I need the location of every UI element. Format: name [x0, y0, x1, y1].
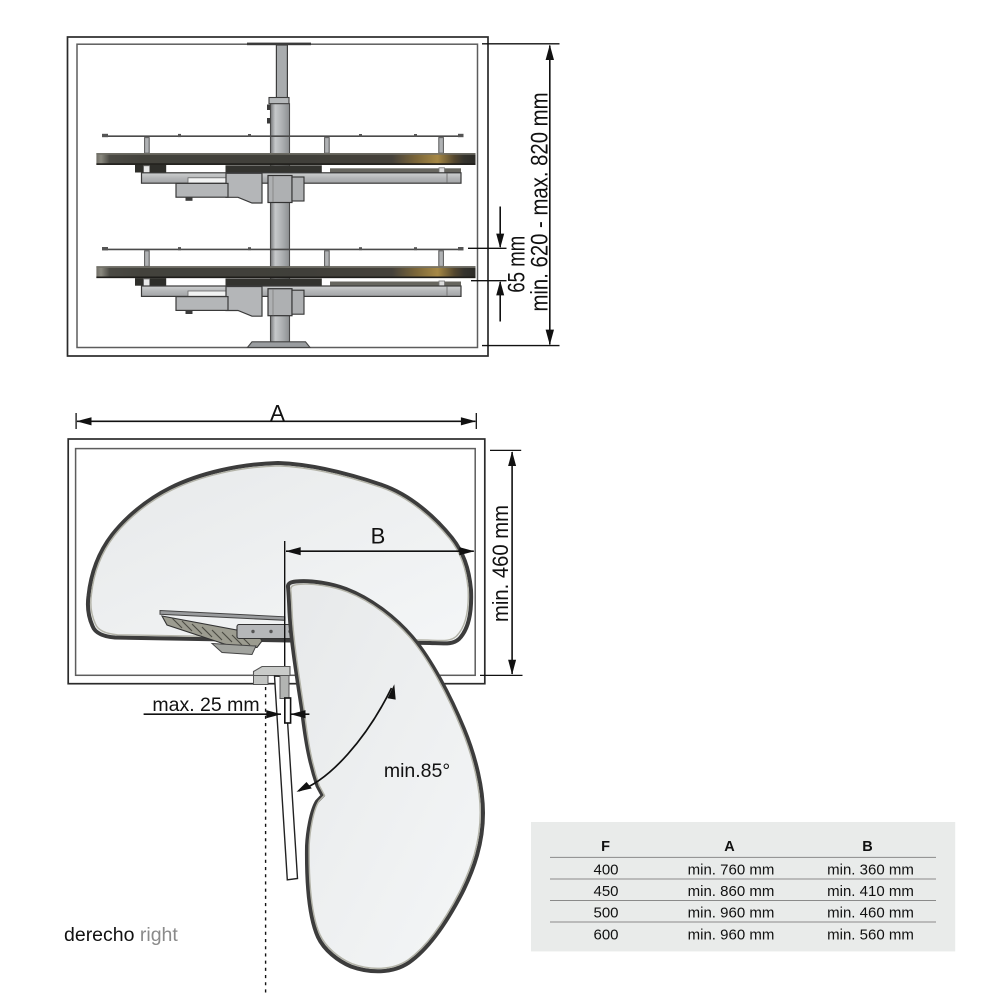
svg-text:min. 760 mm: min. 760 mm	[688, 862, 775, 879]
svg-text:min. 410 mm: min. 410 mm	[827, 883, 914, 900]
svg-text:A: A	[724, 839, 735, 855]
svg-text:F: F	[601, 839, 610, 855]
svg-text:derecho right: derecho right	[64, 924, 178, 946]
svg-text:400: 400	[593, 862, 618, 879]
svg-text:B: B	[371, 524, 386, 549]
svg-text:min. 560 mm: min. 560 mm	[827, 927, 914, 944]
svg-text:600: 600	[593, 927, 618, 944]
svg-text:B: B	[862, 839, 872, 855]
svg-text:65 mm: 65 mm	[504, 236, 531, 293]
svg-text:max. 25 mm: max. 25 mm	[152, 694, 259, 716]
svg-text:min. 460 mm: min. 460 mm	[488, 505, 513, 622]
svg-text:500: 500	[593, 905, 618, 922]
svg-text:min. 360 mm: min. 360 mm	[827, 862, 914, 879]
svg-text:min.85°: min.85°	[384, 760, 450, 782]
svg-text:min. 460 mm: min. 460 mm	[827, 905, 914, 922]
svg-text:450: 450	[593, 883, 618, 900]
svg-text:min. 960 mm: min. 960 mm	[688, 927, 775, 944]
svg-text:min. 620 - max. 820 mm: min. 620 - max. 820 mm	[527, 93, 554, 312]
svg-text:min. 960 mm: min. 960 mm	[688, 905, 775, 922]
svg-text:min. 860 mm: min. 860 mm	[688, 883, 775, 900]
